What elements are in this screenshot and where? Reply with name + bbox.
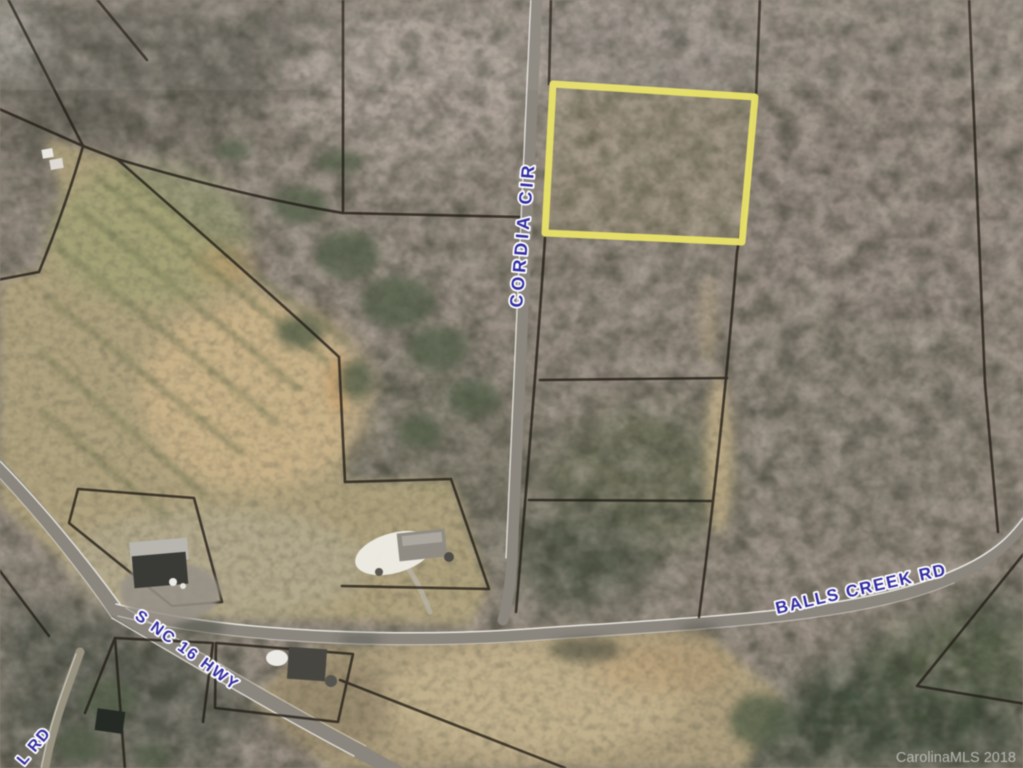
terrain: [0, 0, 1023, 768]
photo-glare: [0, 0, 1023, 90]
aerial-parcel-map: CORDIA CIR BALLS CREEK RD S NC 16 HWY L …: [0, 0, 1023, 768]
mls-watermark: CarolinaMLS 2018: [896, 750, 1016, 766]
highlighted-parcel-outline: [545, 84, 755, 242]
house-l-rd: [95, 708, 126, 734]
grain-texture: [0, 0, 1023, 768]
